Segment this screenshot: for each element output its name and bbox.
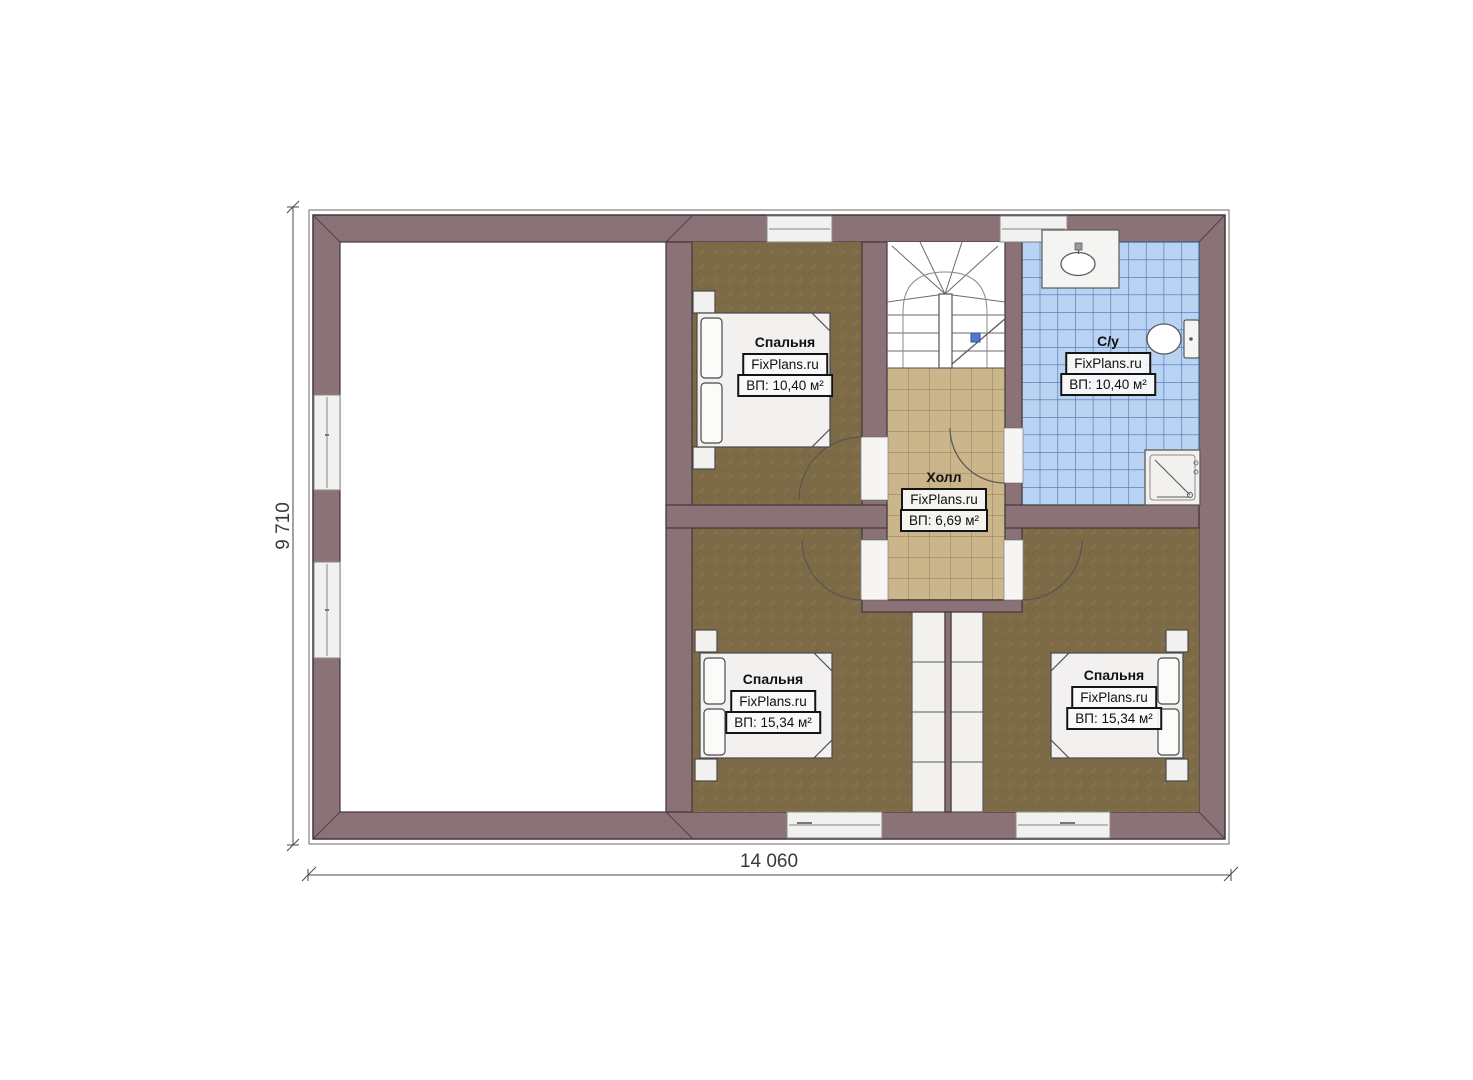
watermark-fixplans: FixPlans.ru [901, 488, 987, 511]
room-label-bedroom-bottom-left: Спальня FixPlans.ru ВП: 15,34 м² [725, 671, 821, 734]
section-marker [971, 333, 980, 342]
watermark-fixplans: FixPlans.ru [1071, 686, 1157, 709]
room-area: ВП: 10,40 м² [737, 374, 833, 397]
room-area: ВП: 15,34 м² [1066, 707, 1162, 730]
shower-icon [1145, 450, 1200, 505]
floor-plan-drawing [0, 0, 1473, 1080]
dimension-width-label: 14 060 [740, 851, 798, 873]
dimension-height-label: 9 710 [273, 502, 295, 550]
room-name: Спальня [1084, 667, 1144, 683]
watermark-fixplans: FixPlans.ru [1065, 352, 1151, 375]
floor-plan-page: Спальня FixPlans.ru ВП: 10,40 м² С/у Fix… [0, 0, 1473, 1080]
room-name: Спальня [755, 334, 815, 350]
room-label-hall: Холл FixPlans.ru ВП: 6,69 м² [900, 469, 988, 532]
room-name: Холл [926, 469, 961, 485]
watermark-fixplans: FixPlans.ru [742, 353, 828, 376]
room-area: ВП: 10,40 м² [1060, 373, 1156, 396]
room-label-bedroom-top: Спальня FixPlans.ru ВП: 10,40 м² [737, 334, 833, 397]
room-name: С/у [1097, 333, 1119, 349]
sink-icon [1042, 230, 1119, 288]
room-area: ВП: 15,34 м² [725, 711, 821, 734]
room-label-bathroom: С/у FixPlans.ru ВП: 10,40 м² [1060, 333, 1156, 396]
watermark-fixplans: FixPlans.ru [730, 690, 816, 713]
room-label-bedroom-bottom-right: Спальня FixPlans.ru ВП: 15,34 м² [1066, 667, 1162, 730]
room-area: ВП: 6,69 м² [900, 509, 988, 532]
room-name: Спальня [743, 671, 803, 687]
